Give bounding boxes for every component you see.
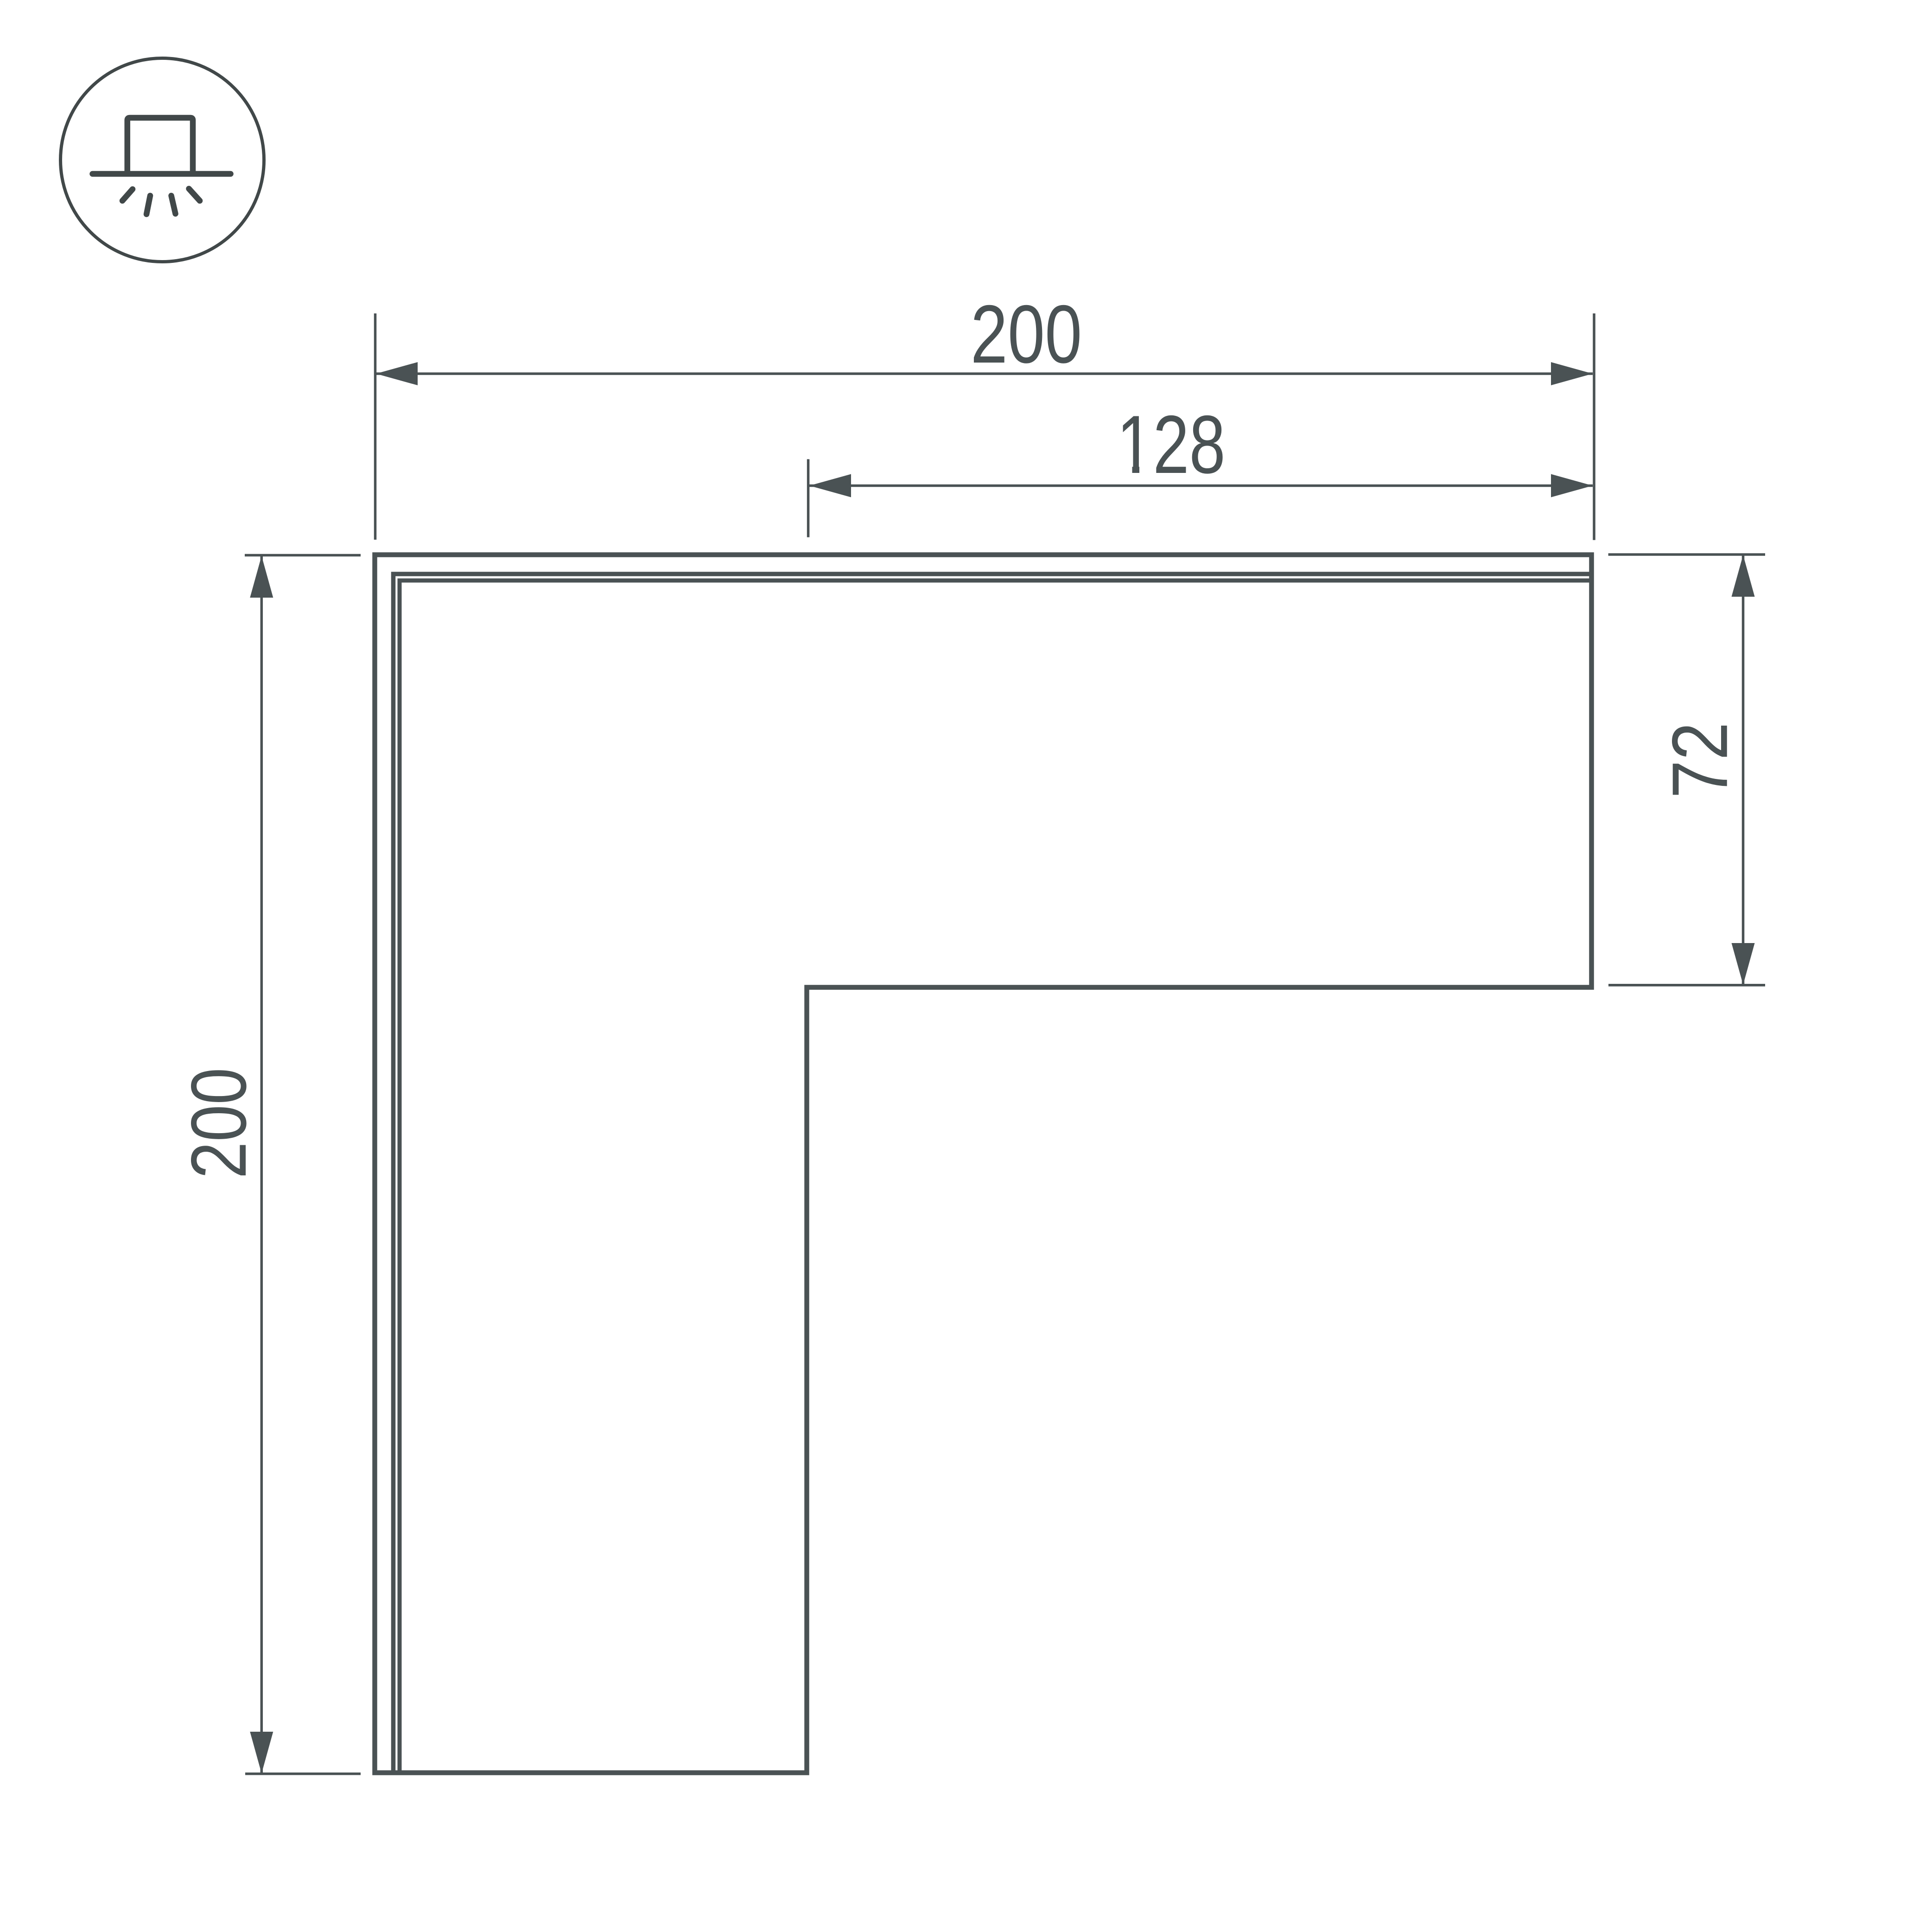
svg-text:200: 200 <box>971 288 1082 381</box>
svg-text:200: 200 <box>175 1068 263 1179</box>
svg-text:72: 72 <box>1656 722 1744 798</box>
svg-text:128: 128 <box>1117 398 1226 491</box>
